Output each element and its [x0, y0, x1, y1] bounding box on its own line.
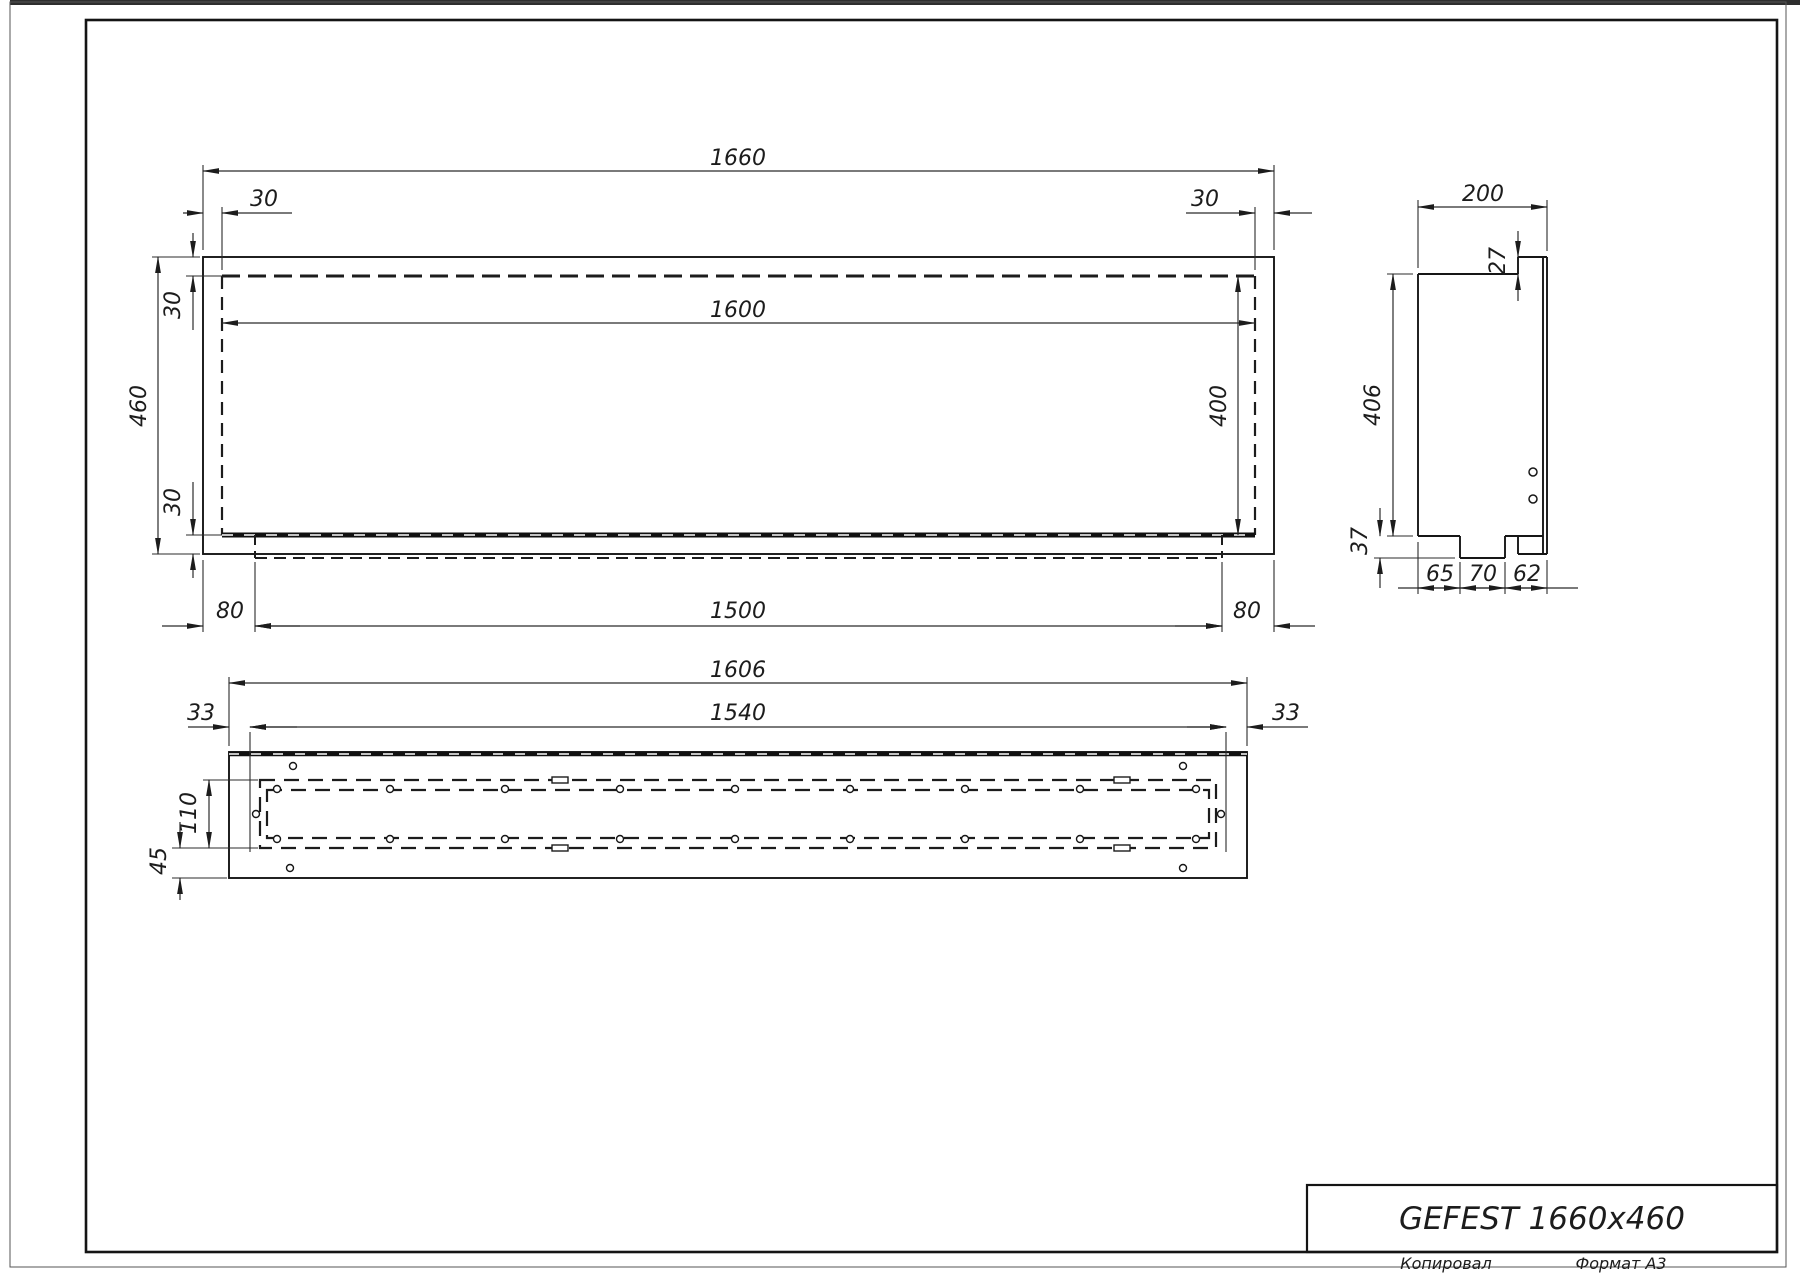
footer-format: Формат A3	[1575, 1254, 1666, 1273]
dim-label-bottom-slot-span: 1540	[710, 701, 766, 726]
dim-label-front-tray-length: 1500	[710, 599, 766, 624]
footer-copied-by: Копировал	[1400, 1254, 1491, 1273]
slot-inner-hidden	[267, 790, 1209, 838]
sheet-frame: GEFEST 1660x460 Копировал Формат A3	[10, 0, 1800, 1273]
side-view	[1418, 257, 1547, 558]
dim-label-side-flange-lip: 27	[1486, 247, 1511, 275]
technical-drawing-canvas: GEFEST 1660x460 Копировал Формат A3 16	[0, 0, 1800, 1273]
dim-label-bottom-margin-right: 33	[1272, 701, 1300, 726]
title-block-model: GEFEST 1660x460	[1399, 1201, 1685, 1237]
dim-label-front-inner-width: 1600	[710, 298, 766, 323]
dim-label-front-inset-right: 30	[1191, 187, 1219, 212]
dim-label-front-inner-height: 400	[1207, 385, 1232, 427]
dim-label-side-seg-62: 62	[1513, 562, 1541, 587]
dim-label-side-seg-65: 65	[1426, 562, 1454, 587]
panel-fixing-holes	[253, 763, 1225, 872]
dim-label-bottom-margin-left: 33	[187, 701, 215, 726]
dim-label-side-seg-70: 70	[1469, 562, 1497, 587]
dim-label-front-tray-margin-left: 80	[216, 599, 244, 624]
dim-label-bottom-overall-width: 1606	[710, 658, 766, 683]
bottom-outer-outline	[229, 752, 1247, 878]
dim-label-side-body-height: 406	[1361, 384, 1386, 426]
bottom-view	[229, 752, 1247, 878]
dim-label-bottom-slot-width: 110	[177, 792, 202, 834]
dim-label-front-inset-bottom: 30	[161, 488, 186, 516]
dim-label-front-inset-top: 30	[161, 291, 186, 319]
dim-label-side-depth: 200	[1462, 182, 1504, 207]
dim-label-side-tray-drop: 37	[1348, 527, 1373, 555]
front-view-dimensions: 1660 30 30 460 30 30 1600 400 80 1500 80	[127, 146, 1315, 632]
drawing-frame	[86, 20, 1777, 1252]
dim-label-bottom-bottom-margin: 45	[147, 847, 172, 875]
dim-label-front-overall-height: 460	[127, 385, 152, 427]
dim-label-front-tray-margin-right: 80	[1233, 599, 1261, 624]
dim-label-front-overall-width: 1660	[710, 146, 766, 171]
dim-label-front-inset-left: 30	[250, 187, 278, 212]
side-hole-lower	[1529, 495, 1537, 503]
drawing-sheet: GEFEST 1660x460 Копировал Формат A3 16	[0, 0, 1800, 1273]
side-hole-upper	[1529, 468, 1537, 476]
